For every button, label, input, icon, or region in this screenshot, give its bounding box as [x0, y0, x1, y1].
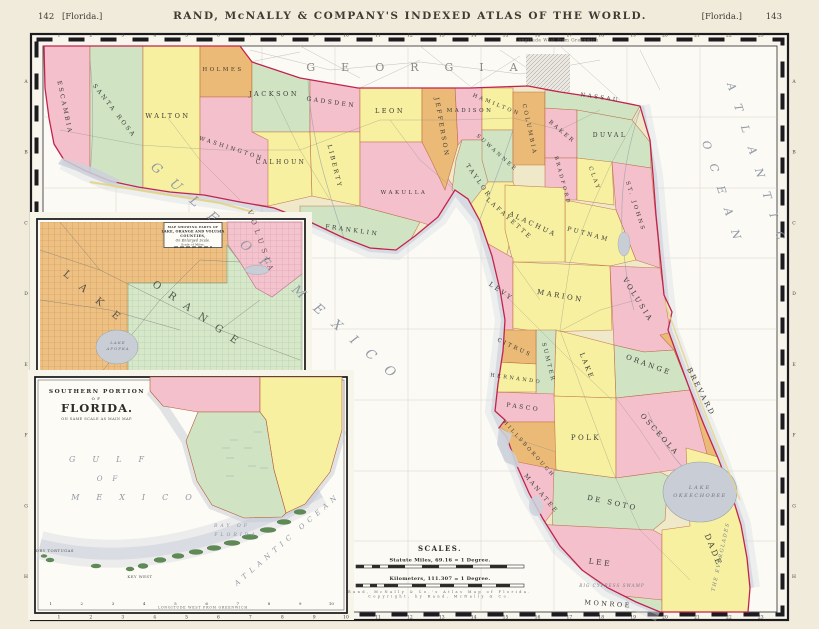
atlas-page: 142 [Florida.] RAND, McNALLY & COMPANY'S…	[0, 0, 819, 629]
border-right-letter: E	[792, 362, 795, 368]
border-top-number: 6	[217, 33, 220, 39]
label-inset2-of: OF	[97, 475, 128, 483]
label-county-jackson: JACKSON	[248, 90, 299, 98]
border-left-letter: A	[23, 79, 28, 85]
border-bottom-number: 4	[153, 615, 156, 621]
page-label-left: [Florida.]	[62, 12, 102, 22]
border-top-number: 3	[121, 33, 124, 39]
label-county-calhoun: CALHOUN	[256, 159, 307, 166]
border-bottom-number: 22	[726, 615, 732, 621]
page-number-right: 143	[766, 12, 782, 22]
inset2-lee-county	[150, 377, 260, 412]
label-scales-copyright-line1: Rand, McNally & Co.'s Atlas Map of Flori…	[348, 590, 532, 594]
border-top-number: 1	[58, 33, 61, 39]
florida-map-svg: 142 [Florida.] RAND, McNALLY & COMPANY'S…	[0, 0, 819, 629]
label-inset1-title-line3: COUNTIES,	[180, 234, 206, 238]
header-title: RAND, McNALLY & COMPANY'S INDEXED ATLAS …	[173, 10, 647, 22]
label-county-wakulla: WAKULLA	[381, 190, 428, 196]
inset2-bottom-number: 10	[329, 601, 335, 606]
border-bottom-number: 15	[503, 615, 509, 621]
border-bottom-number: 8	[281, 615, 284, 621]
border-top-number: 8	[281, 33, 284, 39]
label-inset2-dry-tortugas: DRY TORTUGAS	[36, 548, 74, 553]
label-inset2-florida-bay: FLORIDA	[213, 532, 257, 538]
label-inset1-lake-apopka-line2: APOPKA	[105, 346, 129, 351]
inset2-bottom-number: 9	[299, 601, 302, 606]
border-right-letter: B	[792, 150, 796, 156]
border-top-number: 13	[439, 33, 445, 39]
label-longitude-note: Longitude West from Greenwich	[515, 38, 598, 43]
border-right-letter: D	[792, 291, 796, 297]
border-bottom-number: 11	[375, 615, 381, 621]
border-bottom-number: 5	[185, 615, 188, 621]
border-top-number: 12	[407, 33, 413, 39]
border-top-number: 23	[758, 33, 764, 39]
inset2-bottom-number: 4	[143, 601, 146, 606]
border-top-number: 15	[503, 33, 509, 39]
border-bottom-number: 1	[58, 615, 61, 621]
kilometers-scale-bar	[356, 584, 524, 587]
label-lake-okeechobee-line1: LAKE	[688, 485, 711, 491]
label-inset1-title-line1: MAP SHOWING PARTS OF	[168, 225, 219, 229]
inset2-bottom-number: 2	[81, 601, 84, 606]
page-header: 142 [Florida.] RAND, McNALLY & COMPANY'S…	[38, 10, 782, 22]
border-left-letter: H	[24, 574, 28, 580]
label-county-duval: DUVAL	[593, 132, 628, 139]
label-inset2-title-line1: SOUTHERN PORTION	[49, 389, 145, 395]
label-inset2-title-line4: ON SAME SCALE AS MAIN MAP.	[61, 417, 132, 421]
label-county-holmes: HOLMES	[202, 67, 243, 73]
label-county-walton: WALTON	[145, 112, 190, 120]
lake-george	[618, 232, 630, 256]
label-county-leon: LEON	[375, 107, 405, 115]
border-right-letter: G	[792, 503, 796, 509]
border-bottom-number: 17	[566, 615, 572, 621]
border-bottom-number: 7	[249, 615, 252, 621]
border-right-letter: C	[792, 220, 796, 226]
label-scales-statute-miles: Statute Miles, 69.16 = 1 Degree.	[389, 558, 490, 564]
border-top-number: 11	[375, 33, 381, 39]
label-inset1-title-line2: LAKE, ORANGE AND VOLUSIA	[161, 230, 224, 234]
border-right-letter: F	[792, 433, 795, 439]
inset2-longitude-note: LONGITUDE WEST FROM GREENWICH	[158, 606, 248, 610]
border-bottom-number: 18	[598, 615, 604, 621]
border-top-number: 18	[598, 33, 604, 39]
label-inset2-mexico: MEXICO	[70, 493, 209, 502]
border-left-letter: C	[24, 220, 28, 226]
label-georgia: GEORGIA	[306, 61, 543, 74]
border-left-letter: D	[24, 291, 28, 297]
border-top-number: 7	[249, 33, 252, 39]
border-left-letter: G	[24, 503, 28, 509]
border-top-number: 20	[662, 33, 668, 39]
border-left-letter: E	[24, 362, 27, 368]
border-top-number: 10	[343, 33, 349, 39]
border-bottom-number: 10	[343, 615, 349, 621]
label-lake-okeechobee-line2: OKEECHOBEE	[673, 493, 726, 499]
inset2-bottom-number: 3	[112, 601, 115, 606]
label-inset1-title-line5: Scale of Miles.	[181, 243, 205, 247]
label-county-madison: MADISON	[447, 108, 494, 114]
label-scales-title: SCALES.	[418, 544, 462, 553]
border-bottom-number: 19	[630, 615, 636, 621]
label-inset2-gulf: GULF	[69, 455, 161, 464]
label-county-polk: POLK	[571, 434, 601, 442]
label-scales-kilometers: Kilometers, 111.307 = 1 Degree.	[390, 576, 491, 582]
border-right-letter: H	[792, 574, 796, 580]
border-bottom-number: 6	[217, 615, 220, 621]
border-top-number: 9	[313, 33, 316, 39]
border-bottom-number: 12	[407, 615, 413, 621]
border-top-number: 14	[471, 33, 477, 39]
miles-scale-bar	[356, 565, 524, 568]
border-bottom-number: 23	[758, 615, 764, 621]
border-top-number: 22	[726, 33, 732, 39]
label-scales-copyright-line2: Copyright, by Rand, McNally & Co.	[368, 595, 511, 599]
border-bottom-number: 21	[694, 615, 700, 621]
border-bottom-number: 14	[471, 615, 477, 621]
page-label-right: [Florida.]	[702, 12, 742, 22]
border-top-number: 19	[630, 33, 636, 39]
border-top-number: 2	[89, 33, 92, 39]
border-bottom-number: 20	[662, 615, 668, 621]
inset2-bottom-number: 8	[268, 601, 271, 606]
border-bottom-number: 3	[121, 615, 124, 621]
border-top-number: 4	[153, 33, 156, 39]
label-inset2-title-line3: FLORIDA.	[61, 401, 133, 415]
inset2-bottom-number: 1	[49, 601, 52, 606]
label-inset2-bay-of: BAY OF	[213, 523, 250, 529]
border-right-letter: A	[791, 79, 796, 85]
border-top-number: 21	[694, 33, 700, 39]
border-bottom-number: 9	[313, 615, 316, 621]
label-inset2-key-west: KEY WEST	[127, 574, 152, 579]
border-left-letter: F	[24, 433, 27, 439]
page-number-left: 142	[38, 12, 54, 22]
lake-okeechobee	[663, 462, 737, 522]
border-bottom-number: 13	[439, 615, 445, 621]
border-top-number: 5	[185, 33, 188, 39]
border-bottom-number: 2	[89, 615, 92, 621]
border-bottom-number: 16	[535, 615, 541, 621]
label-inset1-lake-apopka-line1: LAKE	[109, 340, 125, 345]
label-big-cypress-swamp: BIG CYPRESS SWAMP	[578, 583, 645, 588]
border-left-letter: B	[24, 150, 28, 156]
